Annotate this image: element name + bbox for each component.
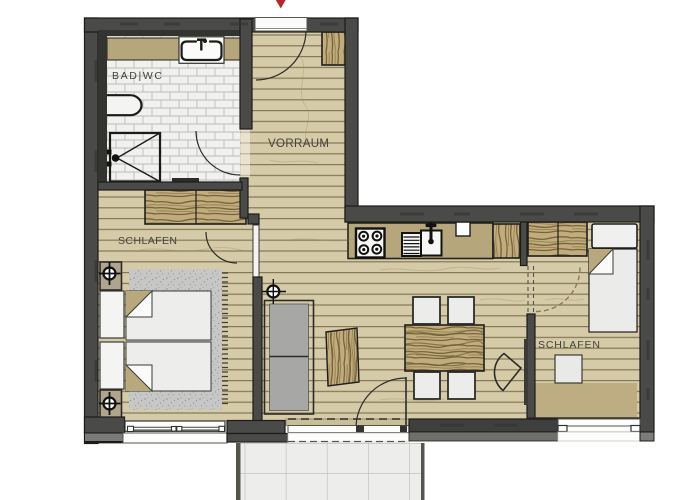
svg-text:SCHLAFEN: SCHLAFEN: [118, 235, 177, 247]
svg-text:VORRAUM: VORRAUM: [268, 138, 329, 150]
svg-text:SCHLAFEN: SCHLAFEN: [538, 339, 600, 351]
